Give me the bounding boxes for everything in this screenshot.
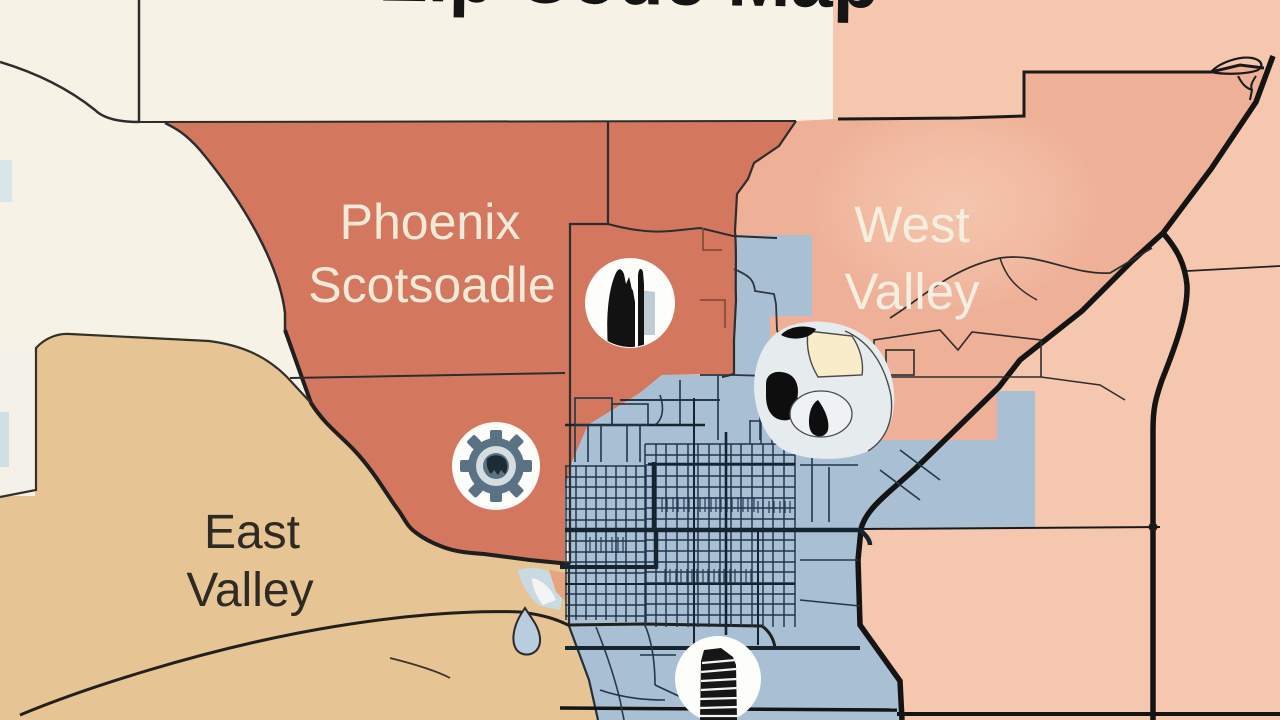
svg-text:West: West	[854, 196, 969, 253]
svg-text:East: East	[204, 506, 300, 559]
svg-text:Phoenix: Phoenix	[340, 194, 521, 250]
svg-text:Scotsoadle: Scotsoadle	[308, 257, 555, 313]
svg-text:Valley: Valley	[844, 263, 980, 320]
svg-text:Valley: Valley	[186, 564, 313, 617]
